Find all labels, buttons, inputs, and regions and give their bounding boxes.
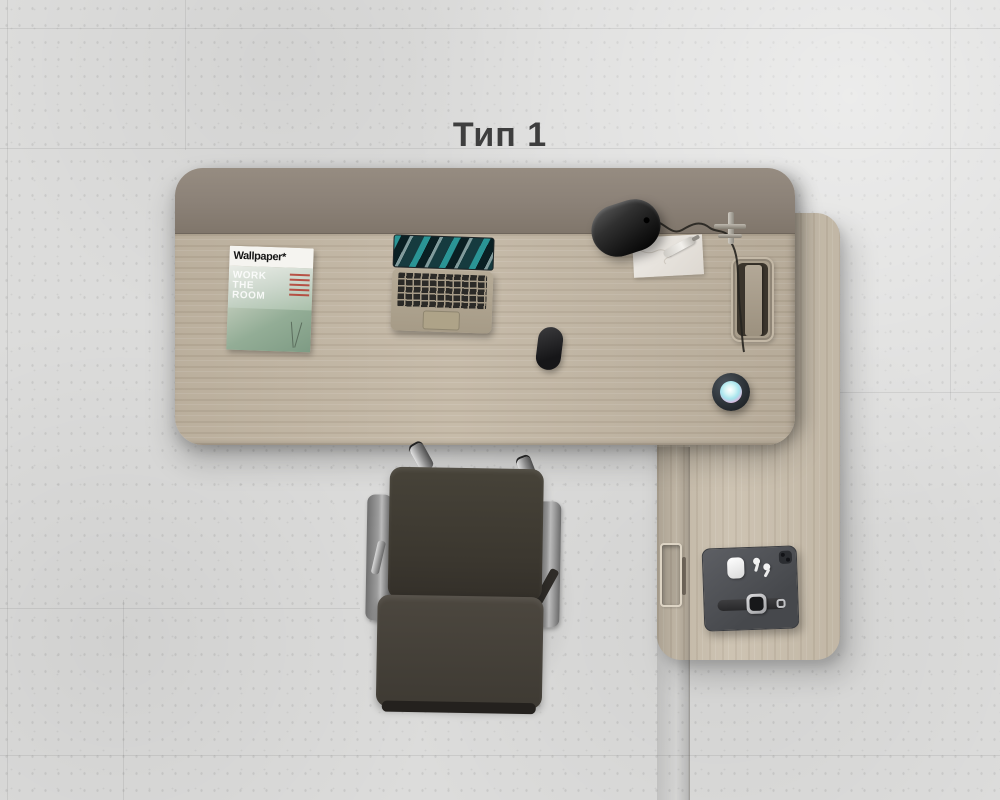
tile-seam [123, 600, 124, 800]
laptop [390, 234, 494, 333]
pedestal-cabinet [657, 447, 690, 800]
homepod-speaker [712, 373, 750, 411]
tile-seam [0, 608, 360, 609]
tile-seam [950, 0, 951, 400]
tablet-camera [779, 551, 792, 564]
desk-back-panel [175, 168, 795, 234]
laptop-screen [393, 234, 495, 271]
cable-grommet [731, 257, 774, 342]
pedestal-handle [660, 543, 682, 607]
red-text-bar [289, 289, 309, 292]
red-text-bar [290, 279, 310, 282]
lamp-cord-exit [643, 216, 651, 224]
camera-lens [781, 553, 785, 557]
office-chair [364, 442, 565, 717]
lamp-body [585, 192, 668, 263]
chair-seat [376, 594, 544, 709]
red-text-bar [289, 284, 309, 287]
plant-stem [291, 322, 294, 348]
pedestal-slot [682, 557, 686, 595]
laptop-deck [390, 268, 493, 333]
chair-backrest [388, 467, 544, 602]
red-text-bar [290, 274, 310, 277]
tile-seam [0, 28, 1000, 29]
scene: Тип 1 Wallpaper* WORK THE ROOM [0, 0, 1000, 800]
tile-seam [0, 755, 1000, 756]
earbud-stem [754, 563, 759, 572]
desk-edge-clamp [712, 212, 748, 248]
speaker-top-glow [720, 381, 742, 403]
magazine-cover: WORK THE ROOM [226, 266, 313, 353]
airpods-case [727, 557, 745, 579]
grommet-recess [737, 263, 768, 336]
tile-seam [840, 392, 1000, 393]
laptop-keyboard [397, 272, 487, 309]
grommet-lid [745, 265, 762, 336]
clamp-bar [718, 234, 742, 238]
camera-lens [786, 558, 790, 562]
plant-stem [294, 322, 302, 347]
watch-body [746, 593, 767, 614]
laptop-trackpad [422, 310, 460, 330]
magazine: Wallpaper* WORK THE ROOM [226, 246, 314, 353]
red-text-bar [289, 294, 309, 297]
magazine-cover-photo [226, 308, 311, 353]
tablet [702, 545, 800, 631]
magazine-headline: WORK THE ROOM [232, 271, 267, 302]
clamp-bar [714, 224, 746, 229]
magazine-side-text [289, 274, 310, 300]
page-title: Тип 1 [0, 116, 1000, 155]
watch-screen [749, 597, 763, 611]
chair-base-edge [382, 701, 536, 715]
magazine-headline-line: ROOM [232, 291, 266, 302]
watch-buckle [776, 599, 785, 608]
desk-lamp [588, 196, 664, 262]
